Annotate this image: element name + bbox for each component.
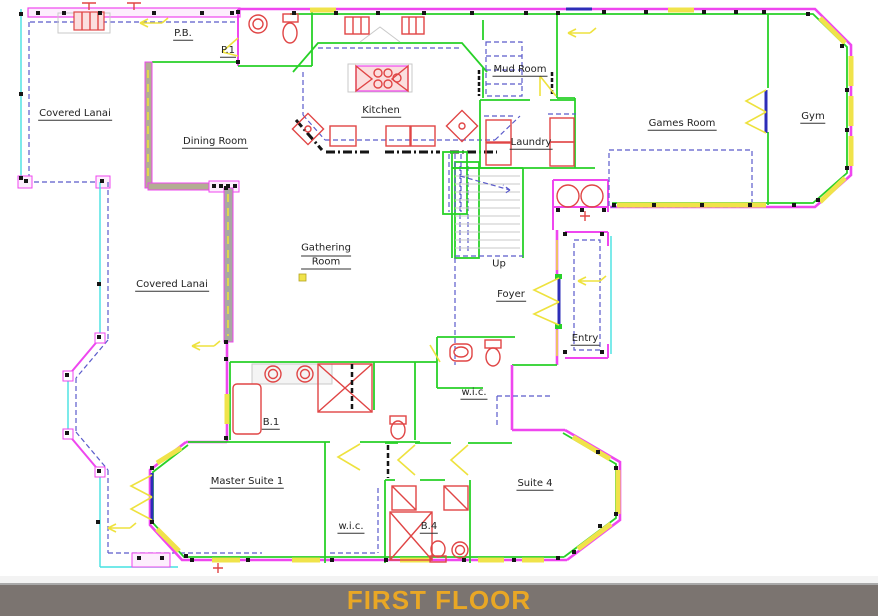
label-suite-4: Suite 4 [516,478,553,491]
water-heaters [557,185,603,221]
label-b4: B.4 [420,521,438,534]
label-b1: B.1 [262,417,280,430]
foyer-south-rooms [430,337,553,428]
label-mud-room: Mud Room [493,64,548,77]
label-wic-master: w.i.c. [337,521,364,534]
mud-room-walls [479,9,592,96]
gathering-room-details [224,162,479,342]
label-covered-lanai-top: Covered Lanai [38,108,112,121]
dining-room-walls [145,62,239,192]
laundry-room [452,100,595,168]
label-laundry: Laundry [510,137,553,150]
label-pb: P.B. [173,28,193,41]
page-title: FIRST FLOOR [347,585,531,616]
label-kitchen: Kitchen [361,105,401,118]
arrows [108,18,606,532]
floor-plan-page: Covered Lanai P.B. P.1 Dining Room Kitch… [0,0,878,616]
label-dining-room: Dining Room [182,136,248,149]
label-gathering-room: Gathering Room [301,243,351,270]
title-bar: FIRST FLOOR [0,585,878,616]
staircase [443,152,523,365]
floor-plan-canvas [0,0,878,576]
label-master-suite-1: Master Suite 1 [210,476,284,489]
label-gym: Gym [800,111,825,124]
label-p1: P.1 [220,45,236,58]
label-games-room: Games Room [648,118,717,131]
games-gym-details [609,90,766,207]
label-covered-lanai-left: Covered Lanai [135,279,209,292]
label-foyer: Foyer [496,289,526,302]
banner-divider [0,576,878,585]
label-entry: Entry [571,333,600,346]
bedroom-wing-walls [188,442,512,563]
label-gathering-line1: Gathering [301,243,351,257]
label-gathering-line2: Room [301,256,351,270]
label-wic-foyer: w.i.c. [460,387,487,400]
front-door [534,274,562,329]
label-up: Up [491,258,507,270]
